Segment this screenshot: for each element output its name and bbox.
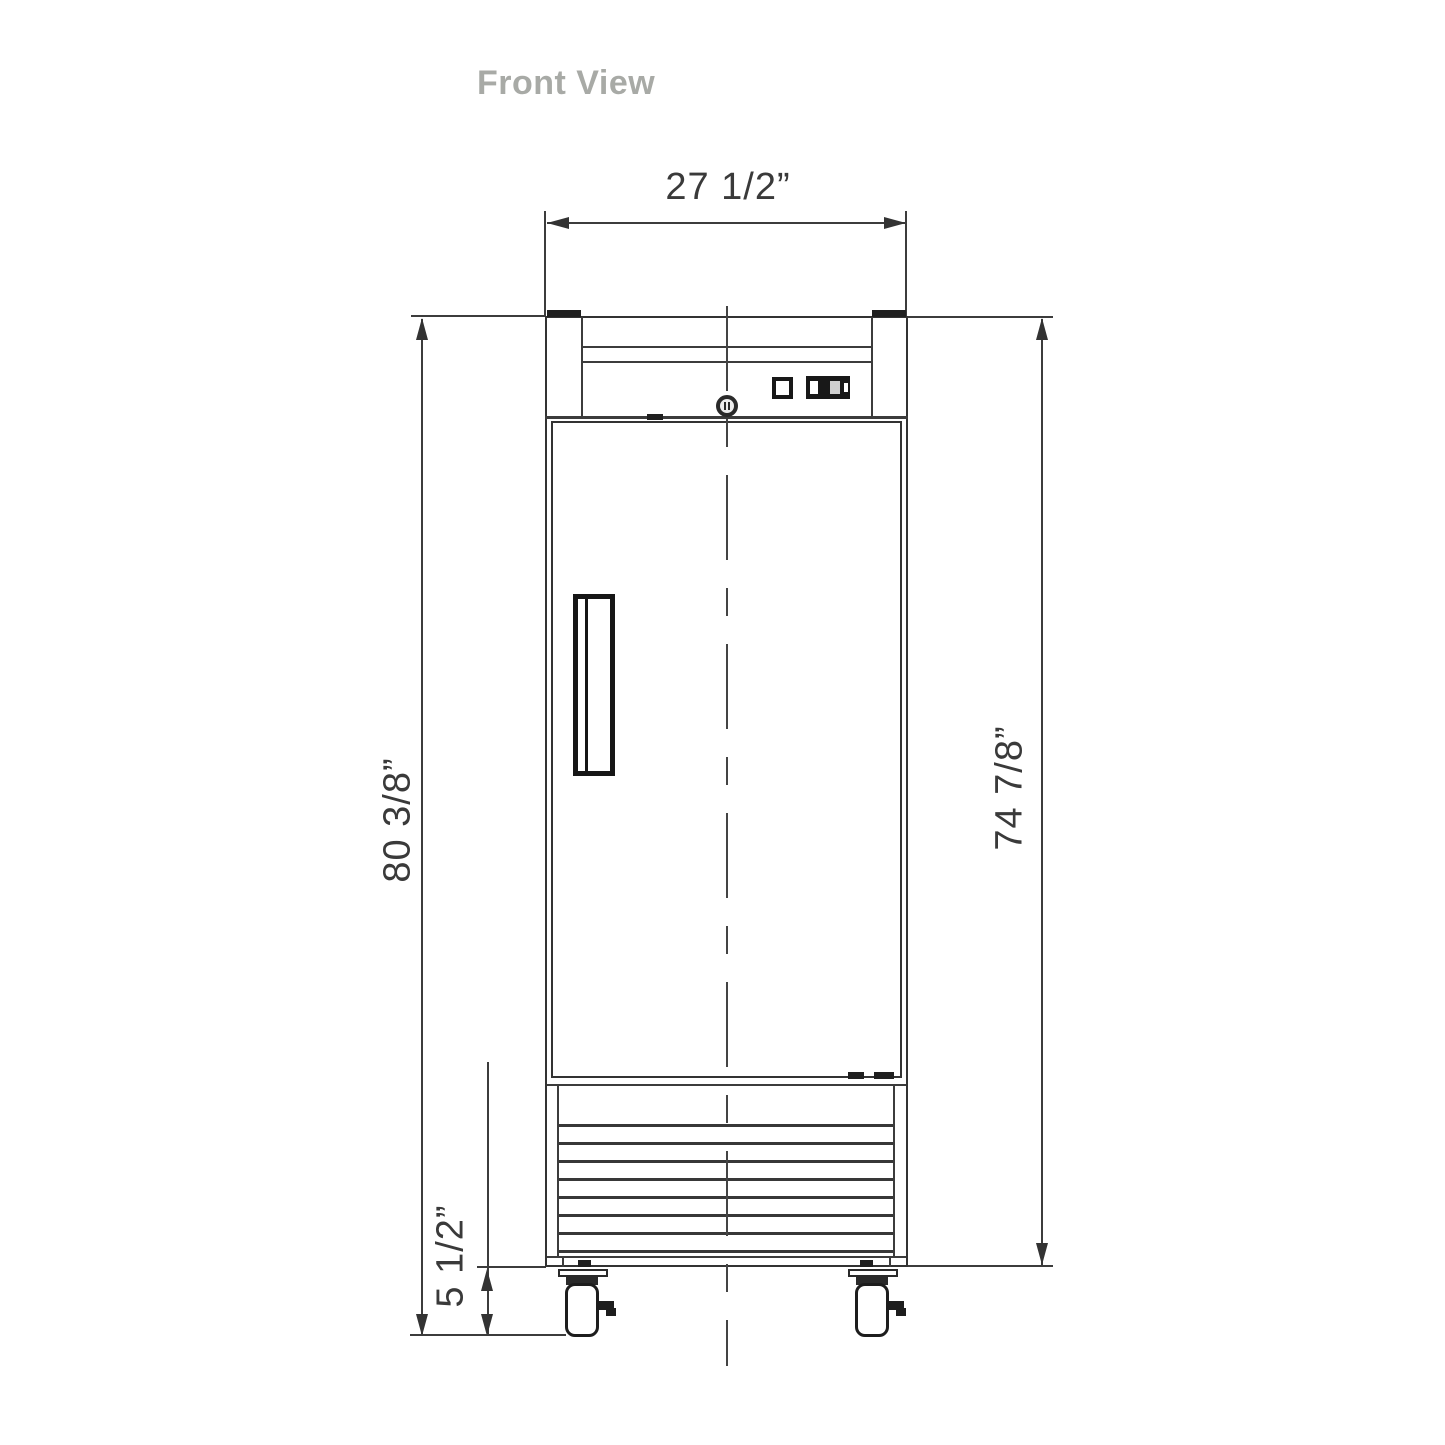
top-cap-left: [547, 310, 581, 317]
extension-line-body-bottom-right: [908, 1265, 1053, 1267]
ground-line: [410, 1334, 566, 1336]
keyhole-detail: [728, 402, 730, 410]
arrow-left-icon: [547, 217, 569, 229]
caster-mount-plate: [848, 1269, 898, 1277]
extension-line-height-top-left: [411, 315, 545, 317]
vertical-centerline: [726, 306, 728, 1366]
door-hinge-top: [647, 414, 663, 420]
extension-line-width-right: [905, 211, 907, 316]
door-handle: [573, 594, 615, 776]
caster-right: [846, 1267, 908, 1339]
caster-brake: [896, 1308, 906, 1316]
arrow-up-icon: [481, 1269, 493, 1291]
top-panel-pillar-left: [581, 317, 583, 419]
top-cap-right: [872, 310, 906, 317]
switch-detail: [844, 383, 848, 392]
door-handle-groove: [585, 599, 588, 771]
arrow-up-icon: [1036, 318, 1048, 340]
caster-bolt: [860, 1260, 873, 1267]
view-title: Front View: [477, 64, 655, 103]
arrow-up-icon: [416, 318, 428, 340]
caster-bolt: [578, 1260, 591, 1267]
caster-left: [556, 1267, 618, 1339]
dimension-caster-height-label: 5 1/2”: [430, 1204, 473, 1307]
thermostat-switch: [806, 376, 850, 399]
caster-wheel: [565, 1283, 599, 1337]
extension-line-caster-top: [477, 1266, 546, 1268]
dimension-overall-height-line: [421, 319, 423, 1335]
switch-detail: [830, 381, 840, 394]
extension-line-body-top-right: [908, 316, 1053, 318]
arrow-down-icon: [416, 1314, 428, 1336]
grille-frame-right: [893, 1084, 895, 1258]
dimension-width-label: 27 1/2”: [665, 166, 790, 209]
door-hinge-bottom: [848, 1072, 864, 1079]
power-switch: [772, 377, 793, 399]
arrow-down-icon: [1036, 1243, 1048, 1265]
dimension-overall-height-label: 80 3/8”: [377, 757, 420, 882]
base-rail-notch: [562, 1257, 564, 1267]
extension-line-width-left: [544, 211, 546, 316]
dimension-body-height-label: 74 7/8”: [989, 725, 1032, 850]
arrow-down-icon: [481, 1314, 493, 1336]
arrow-right-icon: [884, 217, 906, 229]
caster-mount-plate: [558, 1269, 608, 1277]
top-panel-pillar-right: [871, 317, 873, 419]
switch-detail: [810, 381, 818, 394]
caster-brake: [606, 1308, 616, 1316]
door-hinge-bottom: [874, 1072, 894, 1079]
dimension-body-height-line: [1041, 319, 1043, 1265]
dimension-caster-height-line: [487, 1062, 489, 1335]
dimension-width-line: [547, 222, 906, 224]
base-rail-notch: [889, 1257, 891, 1267]
caster-wheel: [855, 1283, 889, 1337]
